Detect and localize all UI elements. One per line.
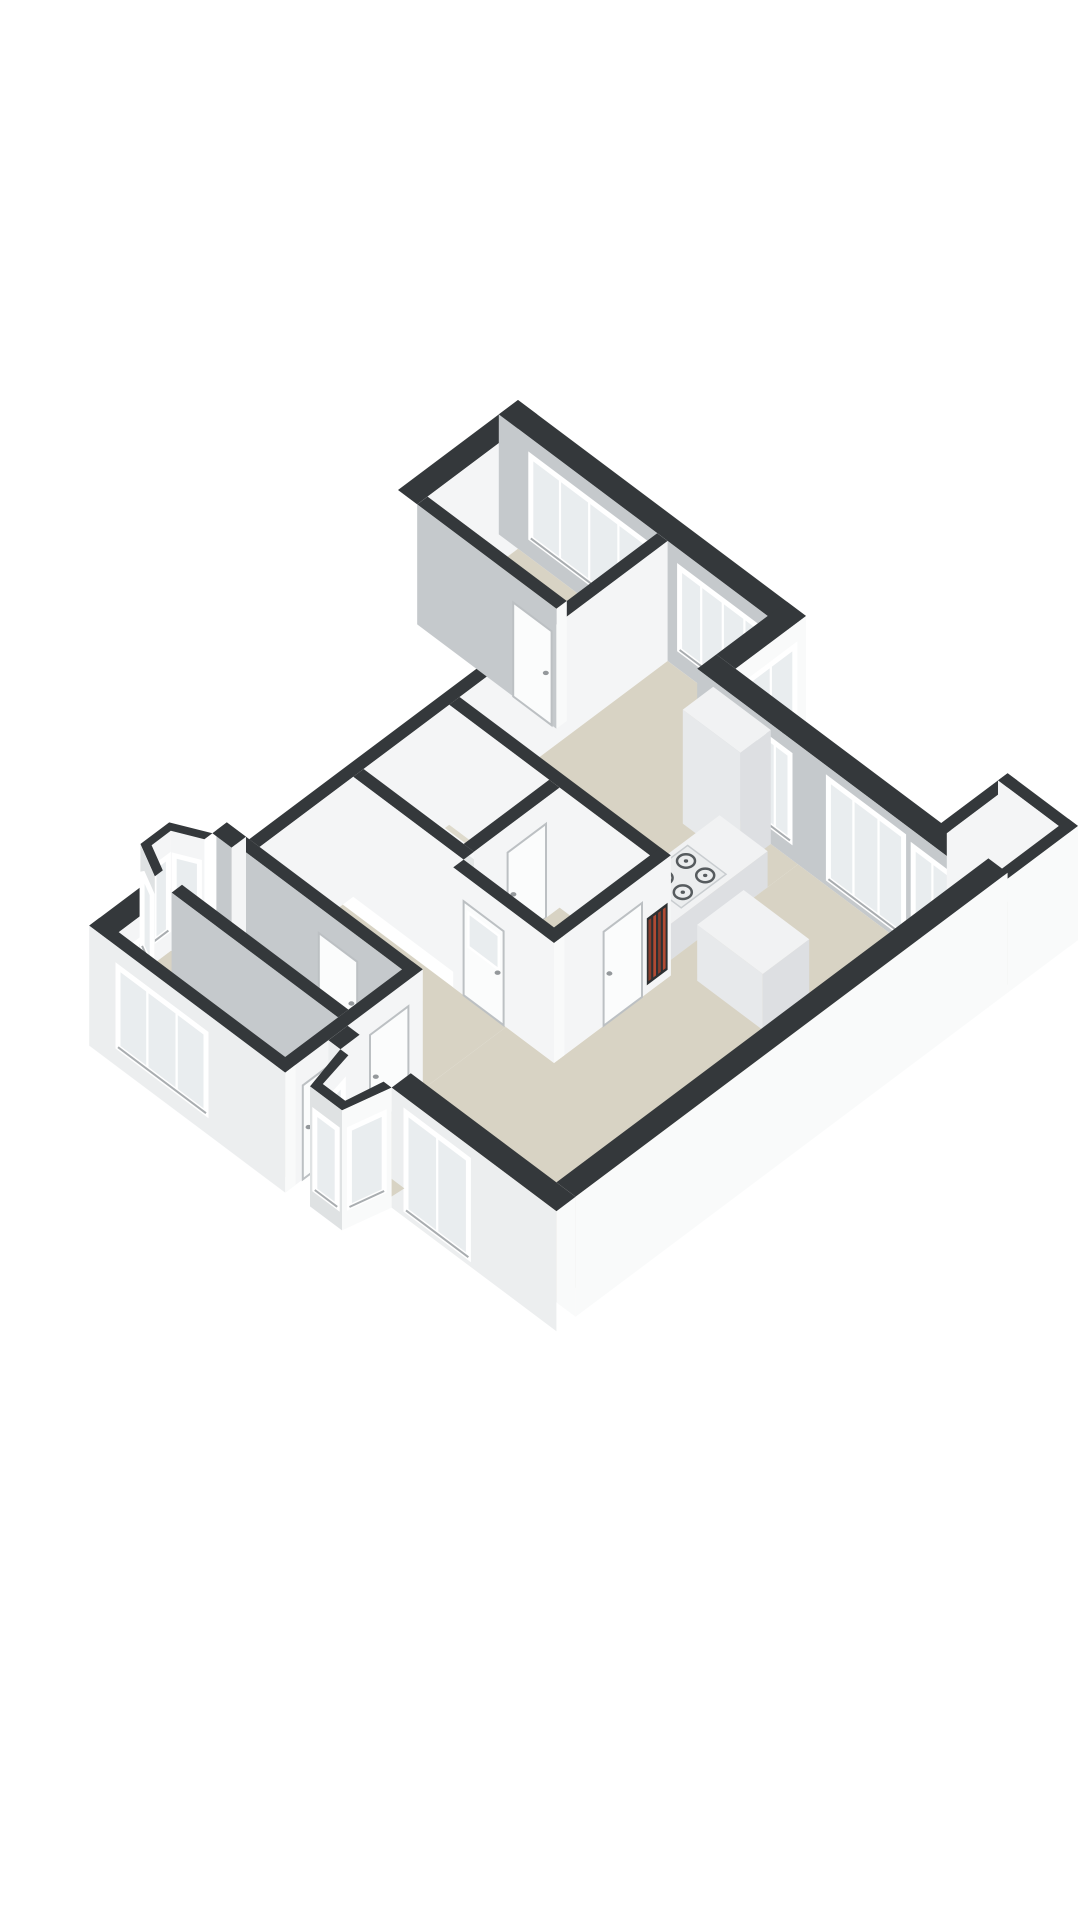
wing-south-windows-mullion [146,988,148,1070]
bedroomA-window-mullion [588,499,590,583]
hall-glazed-door-handle [495,971,501,975]
dining-window-west-mullion [774,742,776,830]
wing-south-wall-cap [285,1065,295,1193]
living-south-window-mullion [436,1135,438,1235]
bedroomA-south-wall-cap [556,601,566,729]
bedroomA-door-handle [543,671,549,675]
floorplan-3d-canvas [0,0,1080,1920]
gas-hob-burner-center [681,891,685,894]
bedroomA-window-mullion [559,478,561,562]
french-doors-mullion [852,797,854,899]
dining-door-handle [606,971,612,975]
gas-hob-burner-center [684,859,688,862]
bedroomB-door-handle [373,1075,379,1079]
wing-south-windows-mullion [176,1010,178,1092]
radiator-fin [663,907,666,970]
radiator-fin [658,911,661,974]
radiator-fin [653,915,656,978]
kitchen-nook-window-mullion [700,583,702,667]
radiator-fin [649,918,652,981]
gas-hob-burner-center [703,874,707,877]
hall-south-wall-cap [554,935,564,1063]
floorplan-page [0,0,1080,1920]
french-doors-mullion [877,816,879,918]
wing-north-door-handle [348,1001,354,1005]
